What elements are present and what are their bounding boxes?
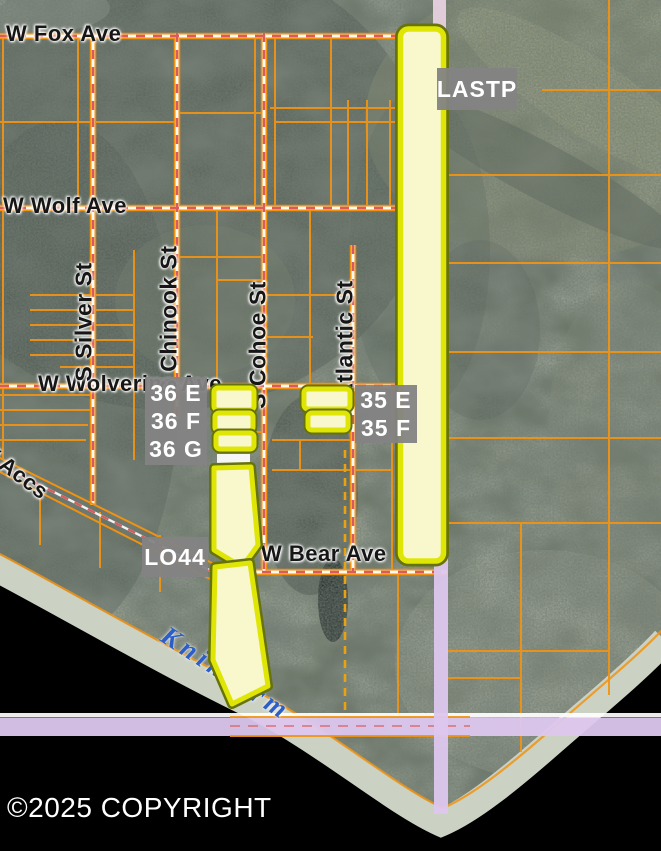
map-base-layer: [0, 0, 661, 851]
map-viewport[interactable]: W Fox Ave W Wolf Ave W Wolverine Ave W B…: [0, 0, 661, 851]
copyright-text: ©2025 COPYRIGHT: [7, 792, 272, 824]
